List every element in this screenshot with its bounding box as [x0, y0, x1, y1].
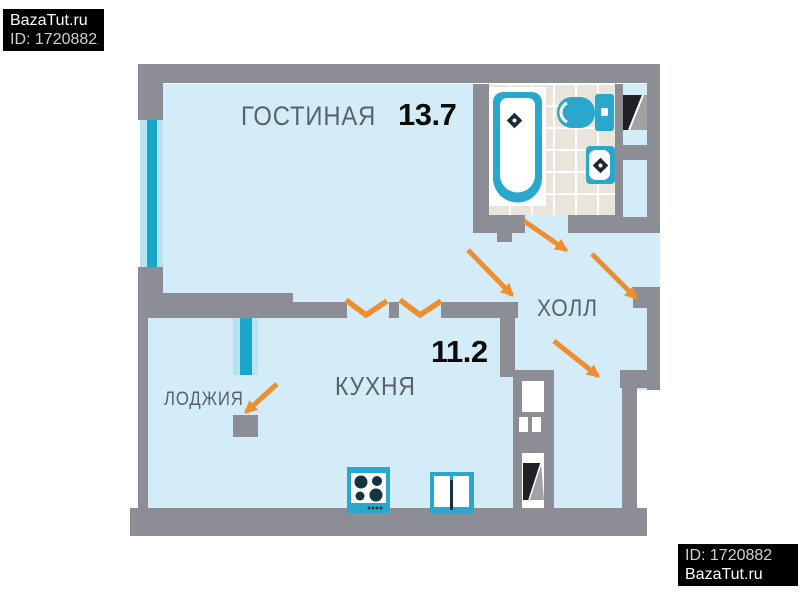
floorplan: ГОСТИНАЯ 13.7 ХОЛЛ 11.2 КУХНЯ ЛОДЖИЯ Baz…	[0, 0, 800, 600]
toilet-icon	[557, 94, 614, 131]
room-label-loggia: ЛОДЖИЯ	[164, 389, 244, 411]
watermark-site-label: BazaTut.ru	[685, 565, 791, 584]
watermark-site-label: BazaTut.ru	[10, 11, 97, 30]
wall-opening-icon	[400, 300, 441, 315]
door-swing-loggia	[246, 384, 277, 412]
stove-icon	[347, 467, 390, 513]
wall-opening-icon	[346, 300, 387, 315]
plan-symbols	[0, 0, 800, 600]
washbasin-icon	[586, 146, 615, 184]
vent-duct-icon	[523, 463, 544, 500]
room-label-hall: ХОЛЛ	[537, 295, 598, 323]
watermark-id-label: ID: 1720882	[10, 30, 97, 49]
room-area-kitchen: 11.2	[431, 334, 488, 370]
kitchen-sink-icon	[430, 472, 474, 514]
watermark-bottom-right: ID: 1720882 BazaTut.ru	[678, 544, 798, 586]
watermark-top-left: BazaTut.ru ID: 1720882	[3, 9, 104, 51]
room-label-kitchen: КУХНЯ	[335, 371, 416, 402]
door-swing-living-room	[468, 250, 512, 295]
door-swing-hall-closet	[554, 341, 598, 376]
bathtub-icon	[489, 87, 546, 206]
door-swing-entrance	[592, 254, 636, 298]
door-swing-bathroom	[524, 221, 566, 250]
room-area-living: 13.7	[398, 97, 456, 133]
vent-duct-icon	[623, 95, 647, 130]
room-label-living: ГОСТИНАЯ	[241, 101, 376, 132]
watermark-id-label: ID: 1720882	[685, 546, 791, 565]
